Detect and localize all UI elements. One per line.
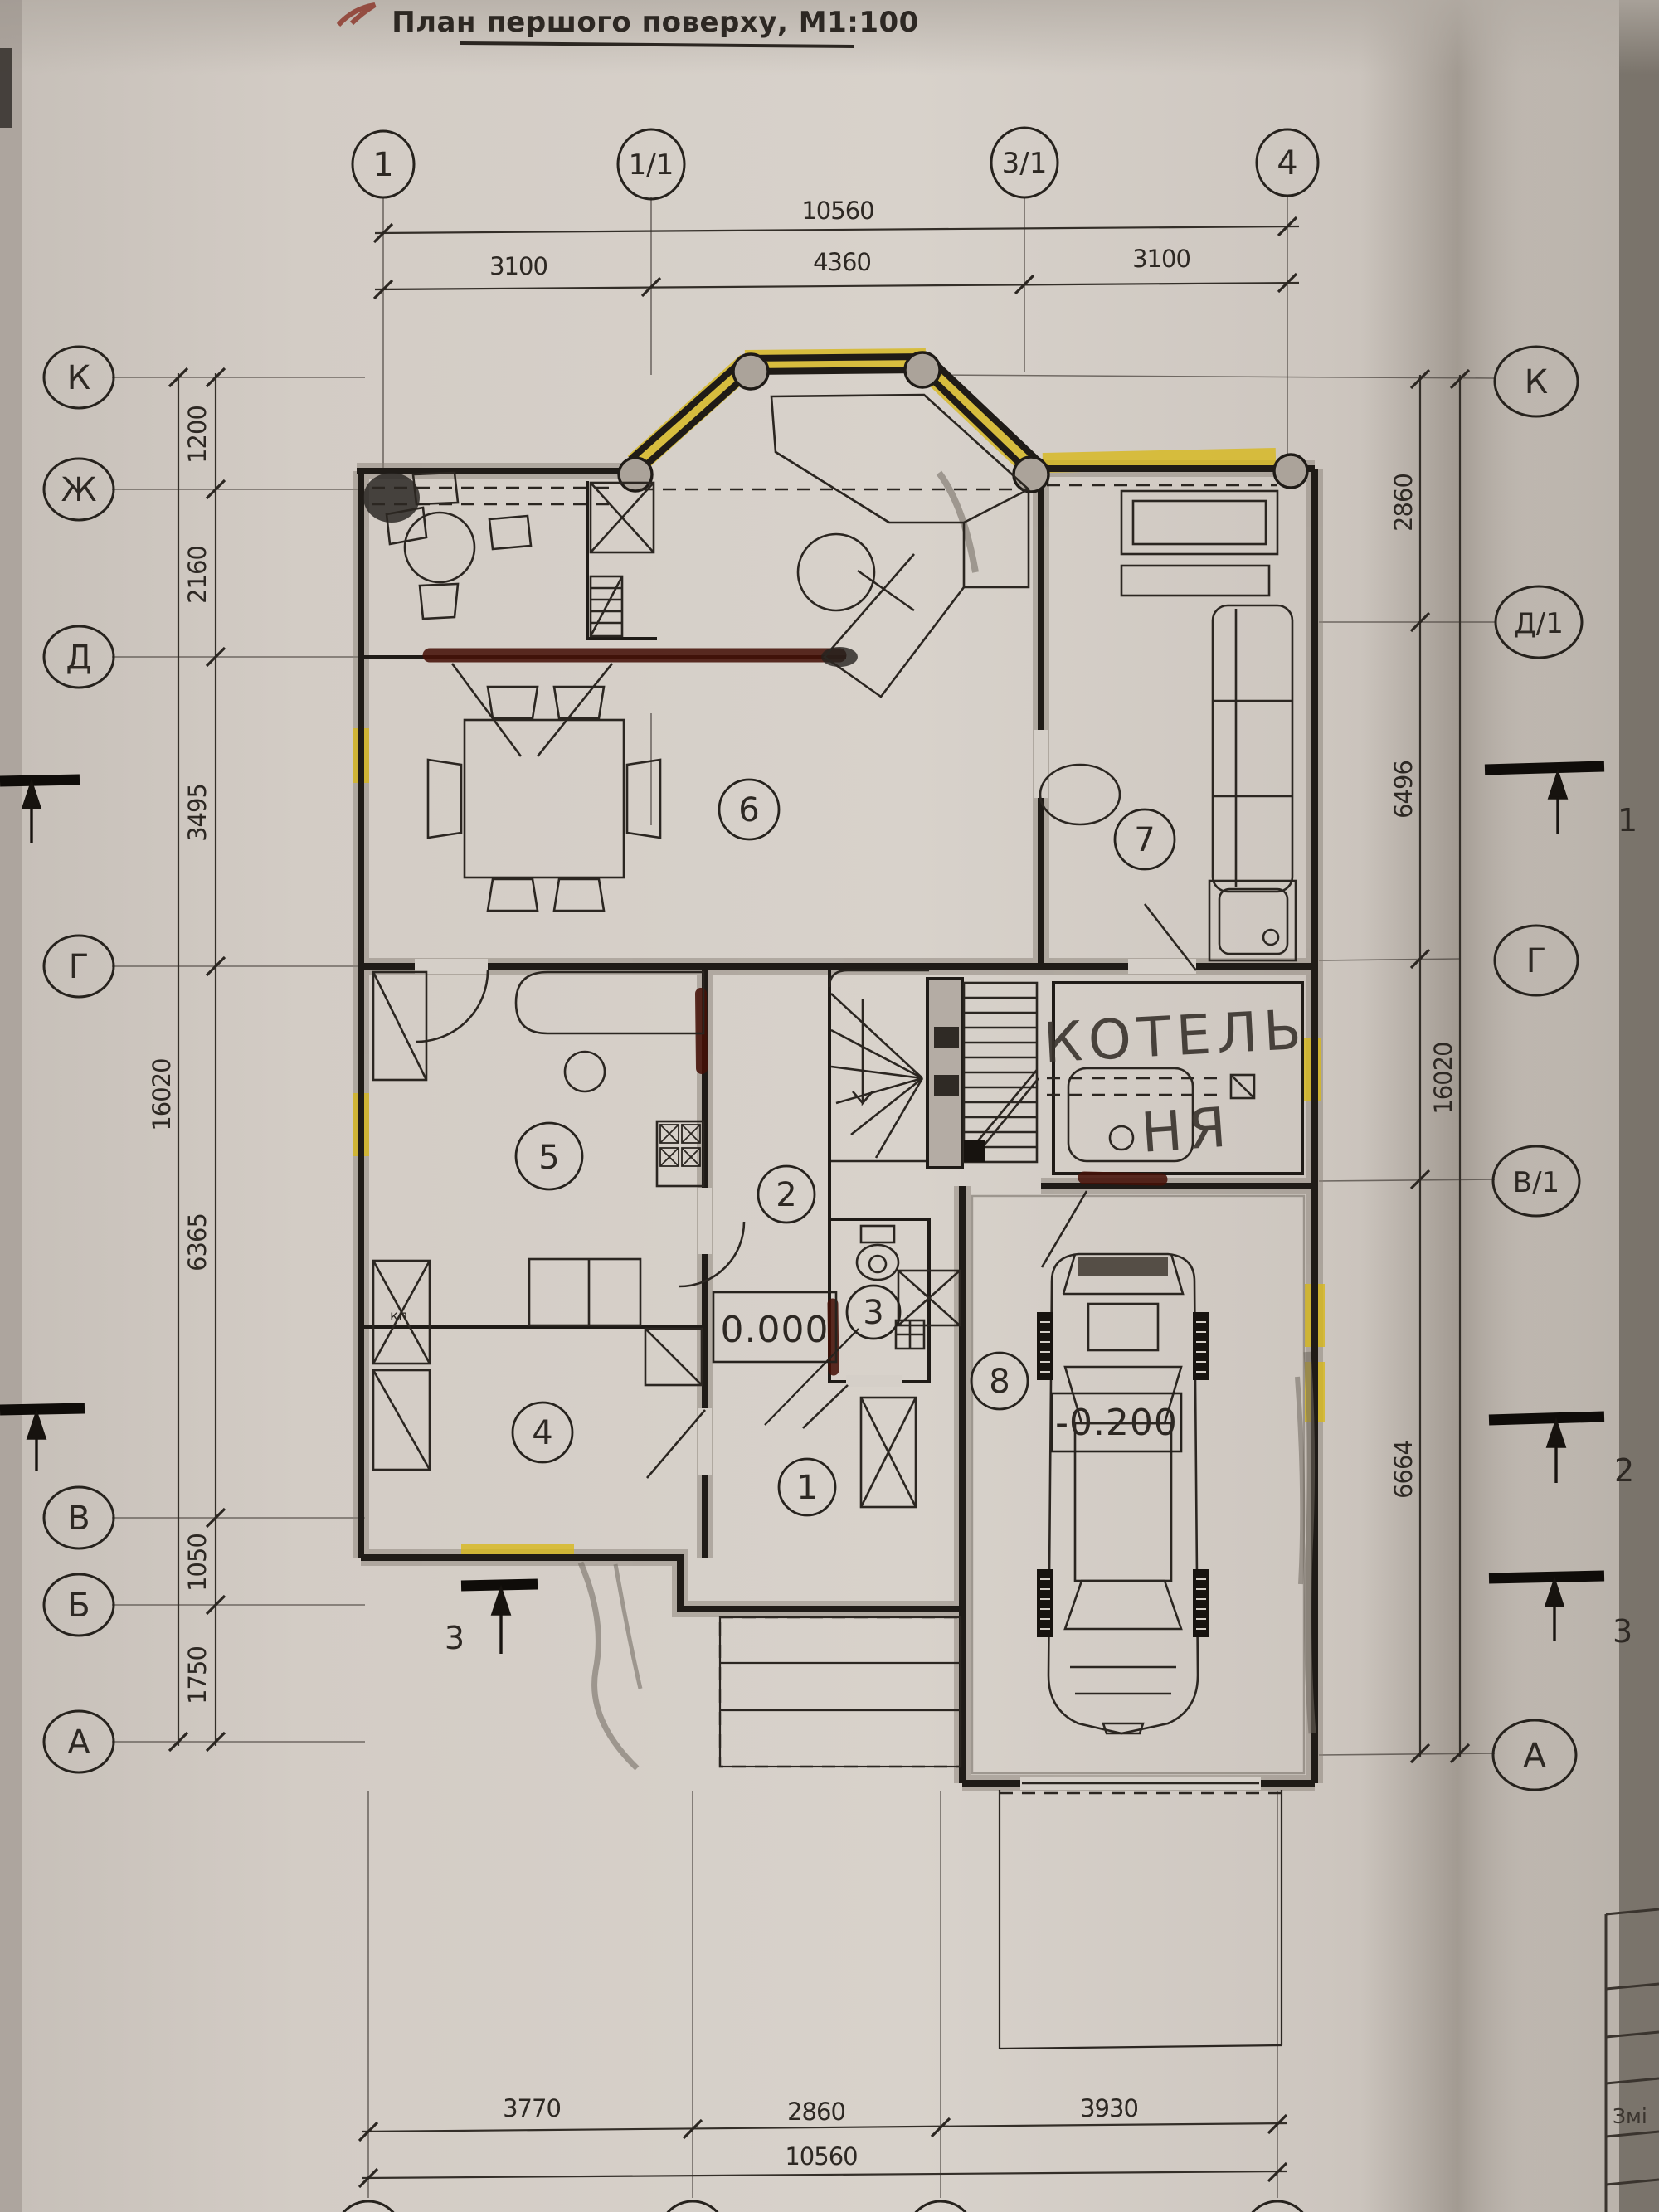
axis-top-1: 1 bbox=[372, 146, 393, 184]
dim-top-total: 10560 bbox=[801, 197, 873, 225]
dim-left-seg1: 1200 bbox=[183, 406, 212, 464]
dim-bottom-seg2: 2860 bbox=[787, 2098, 845, 2126]
axis-left-k: К bbox=[67, 359, 90, 397]
dim-top-seg3: 3100 bbox=[1132, 245, 1190, 273]
dim-bottom-seg3: 3930 bbox=[1080, 2094, 1138, 2122]
dim-right-seg3: 6664 bbox=[1389, 1441, 1418, 1499]
axis-left-a: А bbox=[67, 1723, 90, 1762]
axis-top-1-1: 1/1 bbox=[629, 148, 674, 182]
page-title: План першого поверху, М1:100 bbox=[392, 6, 919, 39]
section-label-3-left: 3 bbox=[445, 1620, 465, 1656]
axis-right-g: Г bbox=[1526, 942, 1546, 980]
axis-left-b: Б bbox=[67, 1587, 90, 1625]
axis-left-d: Д bbox=[66, 639, 91, 677]
graphite-blob-corner bbox=[363, 473, 420, 523]
axis-right-v1: В/1 bbox=[1513, 1166, 1559, 1199]
elevation-main: 0.000 bbox=[721, 1309, 829, 1351]
dim-bottom-total: 10560 bbox=[785, 2142, 857, 2171]
room-4: 4 bbox=[532, 1414, 552, 1452]
section-label-1: 1 bbox=[1618, 802, 1637, 839]
axis-right-d1: Д/1 bbox=[1514, 607, 1564, 640]
room-2: 2 bbox=[776, 1176, 796, 1214]
room-7: 7 bbox=[1134, 821, 1155, 859]
boiler-room-handwriting-2: НЯ bbox=[1139, 1095, 1234, 1164]
dim-right-seg1: 2860 bbox=[1389, 474, 1418, 532]
highlight-wall-top-right bbox=[1043, 458, 1276, 463]
axis-left-v: В bbox=[67, 1500, 90, 1538]
room-5: 5 bbox=[538, 1139, 559, 1177]
dim-left-seg6: 1750 bbox=[183, 1646, 212, 1704]
dim-left-seg5: 1050 bbox=[183, 1534, 212, 1592]
room-8: 8 bbox=[989, 1363, 1010, 1401]
dim-left-seg3: 3495 bbox=[183, 784, 212, 842]
dim-top-seg1: 3100 bbox=[489, 252, 547, 280]
elevation-garage: -0.200 bbox=[1055, 1402, 1178, 1444]
dim-bottom-seg1: 3770 bbox=[503, 2094, 561, 2122]
titleblock-row-label: Змі bbox=[1613, 2104, 1647, 2128]
dim-left-seg2: 2160 bbox=[183, 546, 212, 604]
marker-door-boiler bbox=[1084, 1178, 1161, 1179]
axis-left-zh: Ж bbox=[61, 471, 96, 509]
dim-right-total: 16020 bbox=[1429, 1042, 1457, 1114]
axis-top-3-1: 3/1 bbox=[1002, 147, 1048, 180]
section-label-2: 2 bbox=[1614, 1452, 1634, 1489]
room-3: 3 bbox=[863, 1294, 883, 1332]
edge-smudge bbox=[0, 48, 12, 128]
floor-plan-photo: План першого поверху, М1:100 bbox=[0, 0, 1659, 2212]
axis-top-4: 4 bbox=[1277, 144, 1297, 182]
axis-left-g: Г bbox=[69, 948, 89, 986]
axis-right-a: А bbox=[1523, 1737, 1546, 1775]
kitchen-note: кп bbox=[390, 1308, 407, 1325]
room-1: 1 bbox=[796, 1469, 817, 1507]
dim-left-seg4: 6365 bbox=[183, 1213, 212, 1271]
marker-wc-wall bbox=[833, 1304, 834, 1370]
dim-right-seg2: 6496 bbox=[1389, 761, 1418, 819]
dim-left-total: 16020 bbox=[148, 1058, 176, 1130]
section-label-3: 3 bbox=[1613, 1613, 1632, 1650]
dim-top-seg2: 4360 bbox=[813, 248, 871, 276]
marker-column-wall bbox=[701, 994, 702, 1068]
room-6: 6 bbox=[738, 791, 759, 829]
axis-right-k: К bbox=[1525, 363, 1548, 401]
floor-plan-canvas: План першого поверху, М1:100 bbox=[0, 0, 1659, 2212]
